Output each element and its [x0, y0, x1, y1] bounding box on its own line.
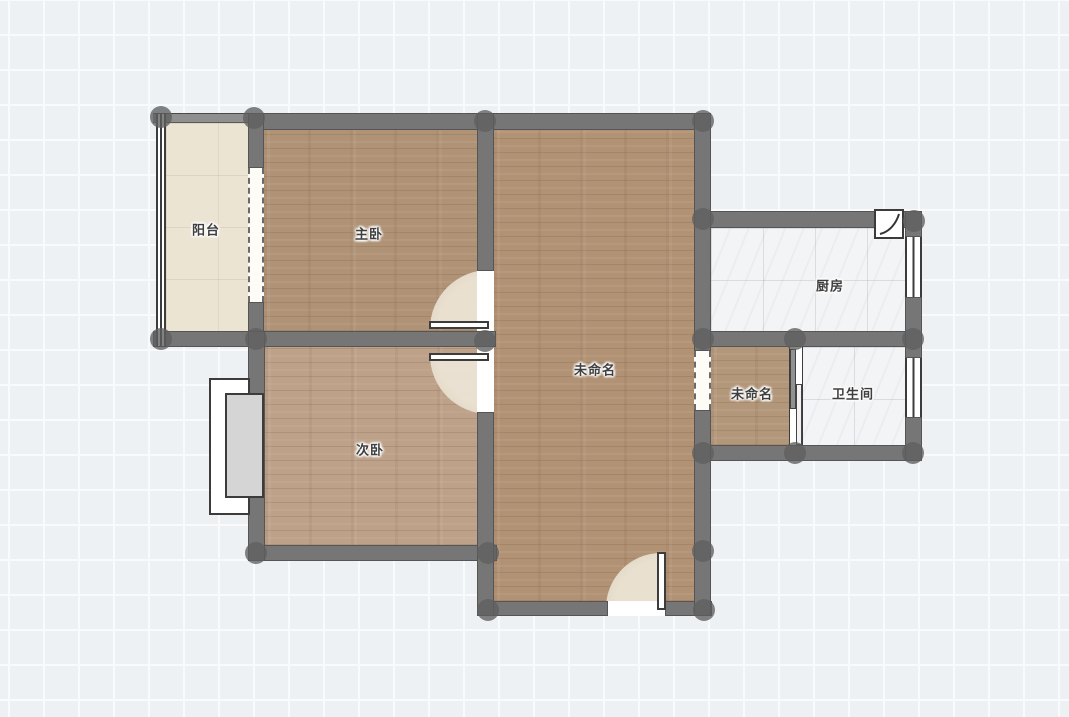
wall-divider-lower[interactable]: [477, 412, 494, 616]
master-bedroom-door-leaf[interactable]: [429, 321, 489, 329]
wall-second-bedroom-bottom[interactable]: [248, 545, 497, 561]
wall-joint[interactable]: [692, 540, 714, 562]
wall-divider-upper[interactable]: [477, 113, 494, 271]
wall-kitchen-bottom[interactable]: [694, 331, 922, 347]
wall-joint[interactable]: [150, 106, 172, 128]
room-label-second-bedroom: 次卧: [356, 440, 384, 459]
wall-joint[interactable]: [692, 442, 714, 464]
entrance-door-leaf[interactable]: [657, 552, 666, 610]
wall-joint[interactable]: [784, 328, 806, 350]
wall-joint[interactable]: [902, 442, 924, 464]
second-bedroom-door-leaf[interactable]: [429, 353, 489, 361]
room-label-kitchen: 厨房: [816, 276, 844, 295]
bathroom-window[interactable]: [905, 358, 922, 417]
sliding-door-panel-right[interactable]: [796, 384, 802, 445]
floorplan-canvas[interactable]: 阳台 主卧 次卧 未命名 厨房 未命名 卫生间: [0, 0, 1069, 717]
wall-joint[interactable]: [245, 328, 267, 350]
bay-window-sill[interactable]: [225, 393, 264, 498]
storage-opening[interactable]: [694, 351, 711, 410]
wall-joint[interactable]: [245, 542, 267, 564]
wall-joint[interactable]: [692, 110, 714, 132]
wall-joint[interactable]: [693, 599, 715, 621]
wall-living-east-upper[interactable]: [694, 113, 711, 351]
kitchen-window[interactable]: [905, 237, 922, 297]
wall-bathroom-bottom[interactable]: [694, 445, 922, 461]
wall-joint[interactable]: [784, 442, 806, 464]
wall-living-east-lower[interactable]: [694, 410, 711, 616]
wall-joint[interactable]: [692, 328, 714, 350]
wall-joint[interactable]: [477, 599, 499, 621]
wall-joint[interactable]: [692, 208, 714, 230]
flue-symbol-icon[interactable]: [874, 209, 904, 239]
wall-joint[interactable]: [474, 330, 496, 352]
wall-living-bottom-left[interactable]: [483, 601, 608, 616]
wall-joint[interactable]: [474, 110, 496, 132]
wall-joint[interactable]: [150, 328, 172, 350]
room-label-master-bedroom: 主卧: [355, 224, 383, 243]
balcony-opening[interactable]: [248, 168, 264, 302]
room-label-storage-unnamed: 未命名: [731, 384, 773, 403]
room-kitchen[interactable]: [709, 226, 907, 333]
room-label-living-unnamed: 未命名: [574, 360, 616, 379]
balcony-window[interactable]: [156, 113, 166, 347]
wall-joint[interactable]: [902, 328, 924, 350]
wall-joint[interactable]: [243, 107, 265, 129]
room-label-balcony: 阳台: [192, 220, 220, 239]
wall-mid-west[interactable]: [153, 331, 496, 347]
wall-joint[interactable]: [903, 210, 925, 232]
wall-joint[interactable]: [477, 542, 499, 564]
room-label-bathroom: 卫生间: [832, 384, 874, 403]
